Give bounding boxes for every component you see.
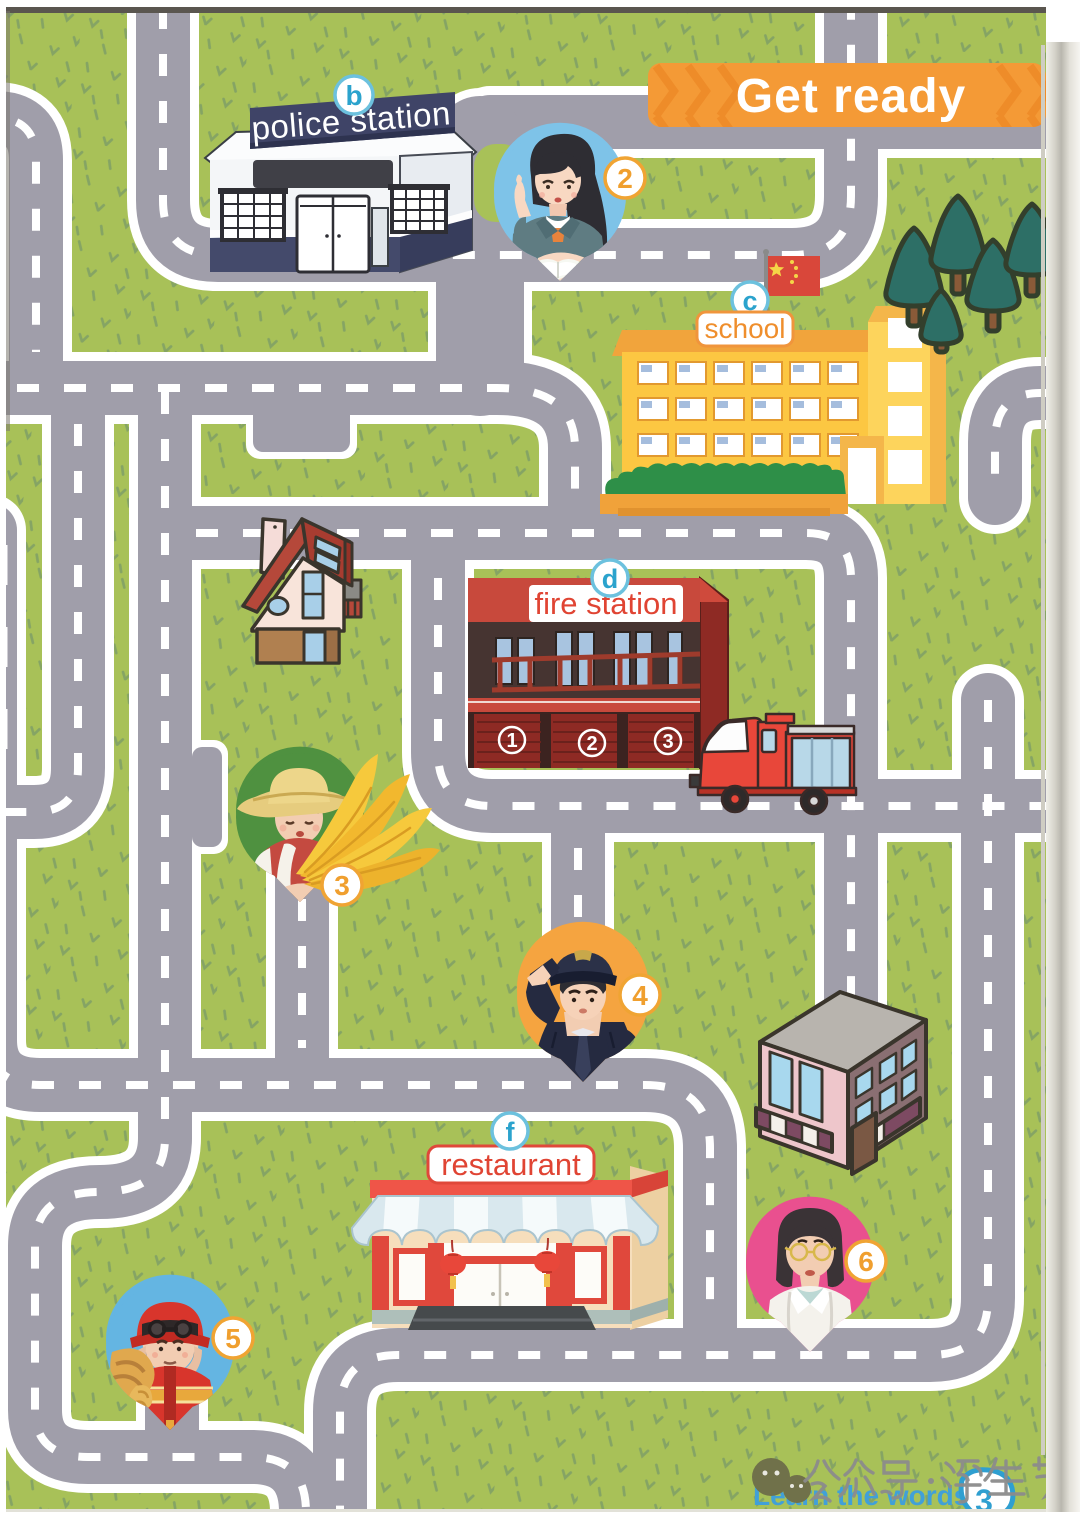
svg-text:d: d [602,564,619,594]
svg-text:1: 1 [506,730,517,752]
svg-text:2: 2 [617,163,633,194]
svg-text:restaurant: restaurant [441,1147,581,1182]
svg-text:3: 3 [334,870,350,901]
svg-text:5: 5 [225,1323,241,1354]
svg-text:Get ready: Get ready [736,70,966,123]
svg-text:2: 2 [586,733,597,755]
svg-text:3: 3 [662,731,673,753]
svg-text:6: 6 [858,1246,874,1277]
svg-text:school: school [705,313,786,344]
svg-text:b: b [345,80,362,111]
svg-text:f: f [506,1117,516,1147]
svg-text:4: 4 [632,980,648,1011]
